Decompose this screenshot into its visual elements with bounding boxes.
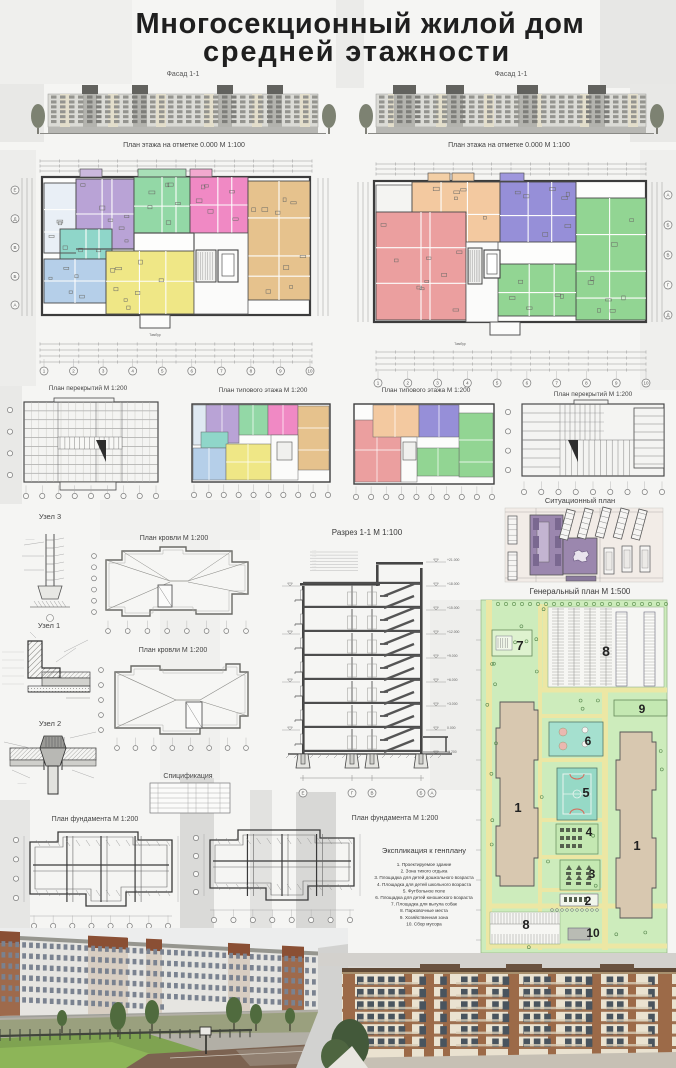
svg-text:Узел 2: Узел 2 bbox=[39, 719, 61, 728]
svg-text:2: 2 bbox=[585, 894, 592, 908]
svg-text:4. Площадка для детей школьног: 4. Площадка для детей школьного возраста bbox=[377, 881, 472, 887]
svg-text:+21.000: +21.000 bbox=[447, 558, 459, 562]
svg-text:План перекрытий М 1:200: План перекрытий М 1:200 bbox=[554, 390, 633, 398]
svg-text:Тамбур: Тамбур bbox=[454, 342, 466, 346]
svg-text:8. Парковочные места: 8. Парковочные места bbox=[400, 908, 448, 913]
svg-text:А: А bbox=[13, 303, 16, 308]
svg-text:Экспликация к генплану: Экспликация к генплану bbox=[382, 846, 466, 855]
svg-text:А: А bbox=[430, 791, 433, 796]
svg-text:9. Хозяйственная зона: 9. Хозяйственная зона bbox=[400, 914, 449, 920]
svg-text:1: 1 bbox=[633, 838, 640, 853]
svg-text:План фундамента М 1:200: План фундамента М 1:200 bbox=[352, 815, 439, 822]
svg-text:План этажа на отметке 0.000 М: План этажа на отметке 0.000 М 1:100 bbox=[448, 142, 570, 149]
svg-text:2. Зона тихого отдыха: 2. Зона тихого отдыха bbox=[401, 869, 448, 874]
svg-text:План типового этажа М 1:200: План типового этажа М 1:200 bbox=[219, 387, 308, 394]
svg-text:План этажа на отметке 0.000 М: План этажа на отметке 0.000 М 1:100 bbox=[123, 142, 245, 149]
svg-text:Спицификация: Спицификация bbox=[163, 773, 212, 780]
svg-text:8: 8 bbox=[522, 917, 529, 932]
svg-text:Ситуационный план: Ситуационный план bbox=[545, 496, 615, 505]
svg-text:Д: Д bbox=[666, 313, 669, 318]
svg-text:10. Сбор мусора: 10. Сбор мусора bbox=[406, 921, 442, 926]
svg-text:Фасад 1-1: Фасад 1-1 bbox=[167, 71, 200, 78]
svg-text:6: 6 bbox=[585, 734, 592, 748]
svg-text:10: 10 bbox=[586, 926, 600, 940]
svg-text:Узел 1: Узел 1 bbox=[38, 621, 60, 630]
svg-text:Б: Б bbox=[14, 274, 17, 279]
svg-text:План фундамента М 1:200: План фундамента М 1:200 bbox=[52, 816, 139, 823]
svg-text:+12.000: +12.000 bbox=[447, 630, 459, 634]
svg-text:Д: Д bbox=[13, 216, 16, 221]
svg-text:Разрез 1-1 М 1:100: Разрез 1-1 М 1:100 bbox=[332, 528, 403, 537]
svg-text:5: 5 bbox=[582, 785, 589, 800]
svg-text:В: В bbox=[370, 791, 373, 796]
svg-text:А: А bbox=[666, 193, 669, 198]
svg-text:Б: Б bbox=[420, 791, 423, 796]
svg-text:План типового этажа М 1:200: План типового этажа М 1:200 bbox=[382, 387, 471, 394]
svg-text:10: 10 bbox=[307, 369, 313, 374]
svg-text:3: 3 bbox=[589, 867, 596, 881]
svg-text:+15.000: +15.000 bbox=[447, 606, 459, 610]
svg-text:Е: Е bbox=[13, 188, 16, 193]
svg-text:———: ——— bbox=[26, 537, 35, 541]
svg-text:+9.000: +9.000 bbox=[447, 654, 458, 658]
svg-text:+18.000: +18.000 bbox=[447, 582, 459, 586]
svg-text:Фасад 1-1: Фасад 1-1 bbox=[495, 71, 528, 78]
svg-text:———: ——— bbox=[18, 781, 27, 785]
svg-text:Узел 3: Узел 3 bbox=[39, 512, 61, 521]
svg-text:10: 10 bbox=[643, 381, 649, 386]
svg-text:Генеральный план М 1:500: Генеральный план М 1:500 bbox=[530, 587, 631, 596]
svg-text:8: 8 bbox=[602, 643, 610, 659]
svg-text:7: 7 bbox=[516, 638, 523, 653]
svg-text:+3.000: +3.000 bbox=[447, 702, 458, 706]
svg-text:План перекрытий М 1:200: План перекрытий М 1:200 bbox=[49, 384, 128, 392]
svg-text:Е: Е bbox=[301, 791, 304, 796]
svg-text:План кровли М 1:200: План кровли М 1:200 bbox=[140, 535, 209, 542]
svg-text:В: В bbox=[666, 253, 669, 258]
svg-text:7. Площадка для выгула собак: 7. Площадка для выгула собак bbox=[391, 902, 458, 907]
svg-text:3. Площадка для детей дошкольн: 3. Площадка для детей дошкольного возрас… bbox=[374, 874, 474, 880]
svg-text:6. Площадка для детей юношеско: 6. Площадка для детей юношеского возраст… bbox=[375, 894, 473, 900]
svg-text:В: В bbox=[13, 245, 16, 250]
svg-text:0.000: 0.000 bbox=[447, 726, 456, 730]
svg-text:План кровли М 1:200: План кровли М 1:200 bbox=[139, 647, 208, 654]
svg-text:4: 4 bbox=[586, 825, 593, 839]
svg-text:9: 9 bbox=[639, 702, 646, 716]
svg-text:средней этажности: средней этажности bbox=[203, 36, 511, 68]
svg-text:Б: Б bbox=[667, 223, 670, 228]
svg-text:1: 1 bbox=[514, 800, 521, 815]
svg-text:5. Футбольное поле: 5. Футбольное поле bbox=[403, 888, 446, 893]
svg-text:Тамбур: Тамбур bbox=[149, 333, 161, 337]
svg-text:·····: ····· bbox=[312, 568, 316, 571]
svg-text:1. Проектируемое здание: 1. Проектируемое здание bbox=[397, 862, 452, 867]
svg-text:+6.000: +6.000 bbox=[447, 678, 458, 682]
